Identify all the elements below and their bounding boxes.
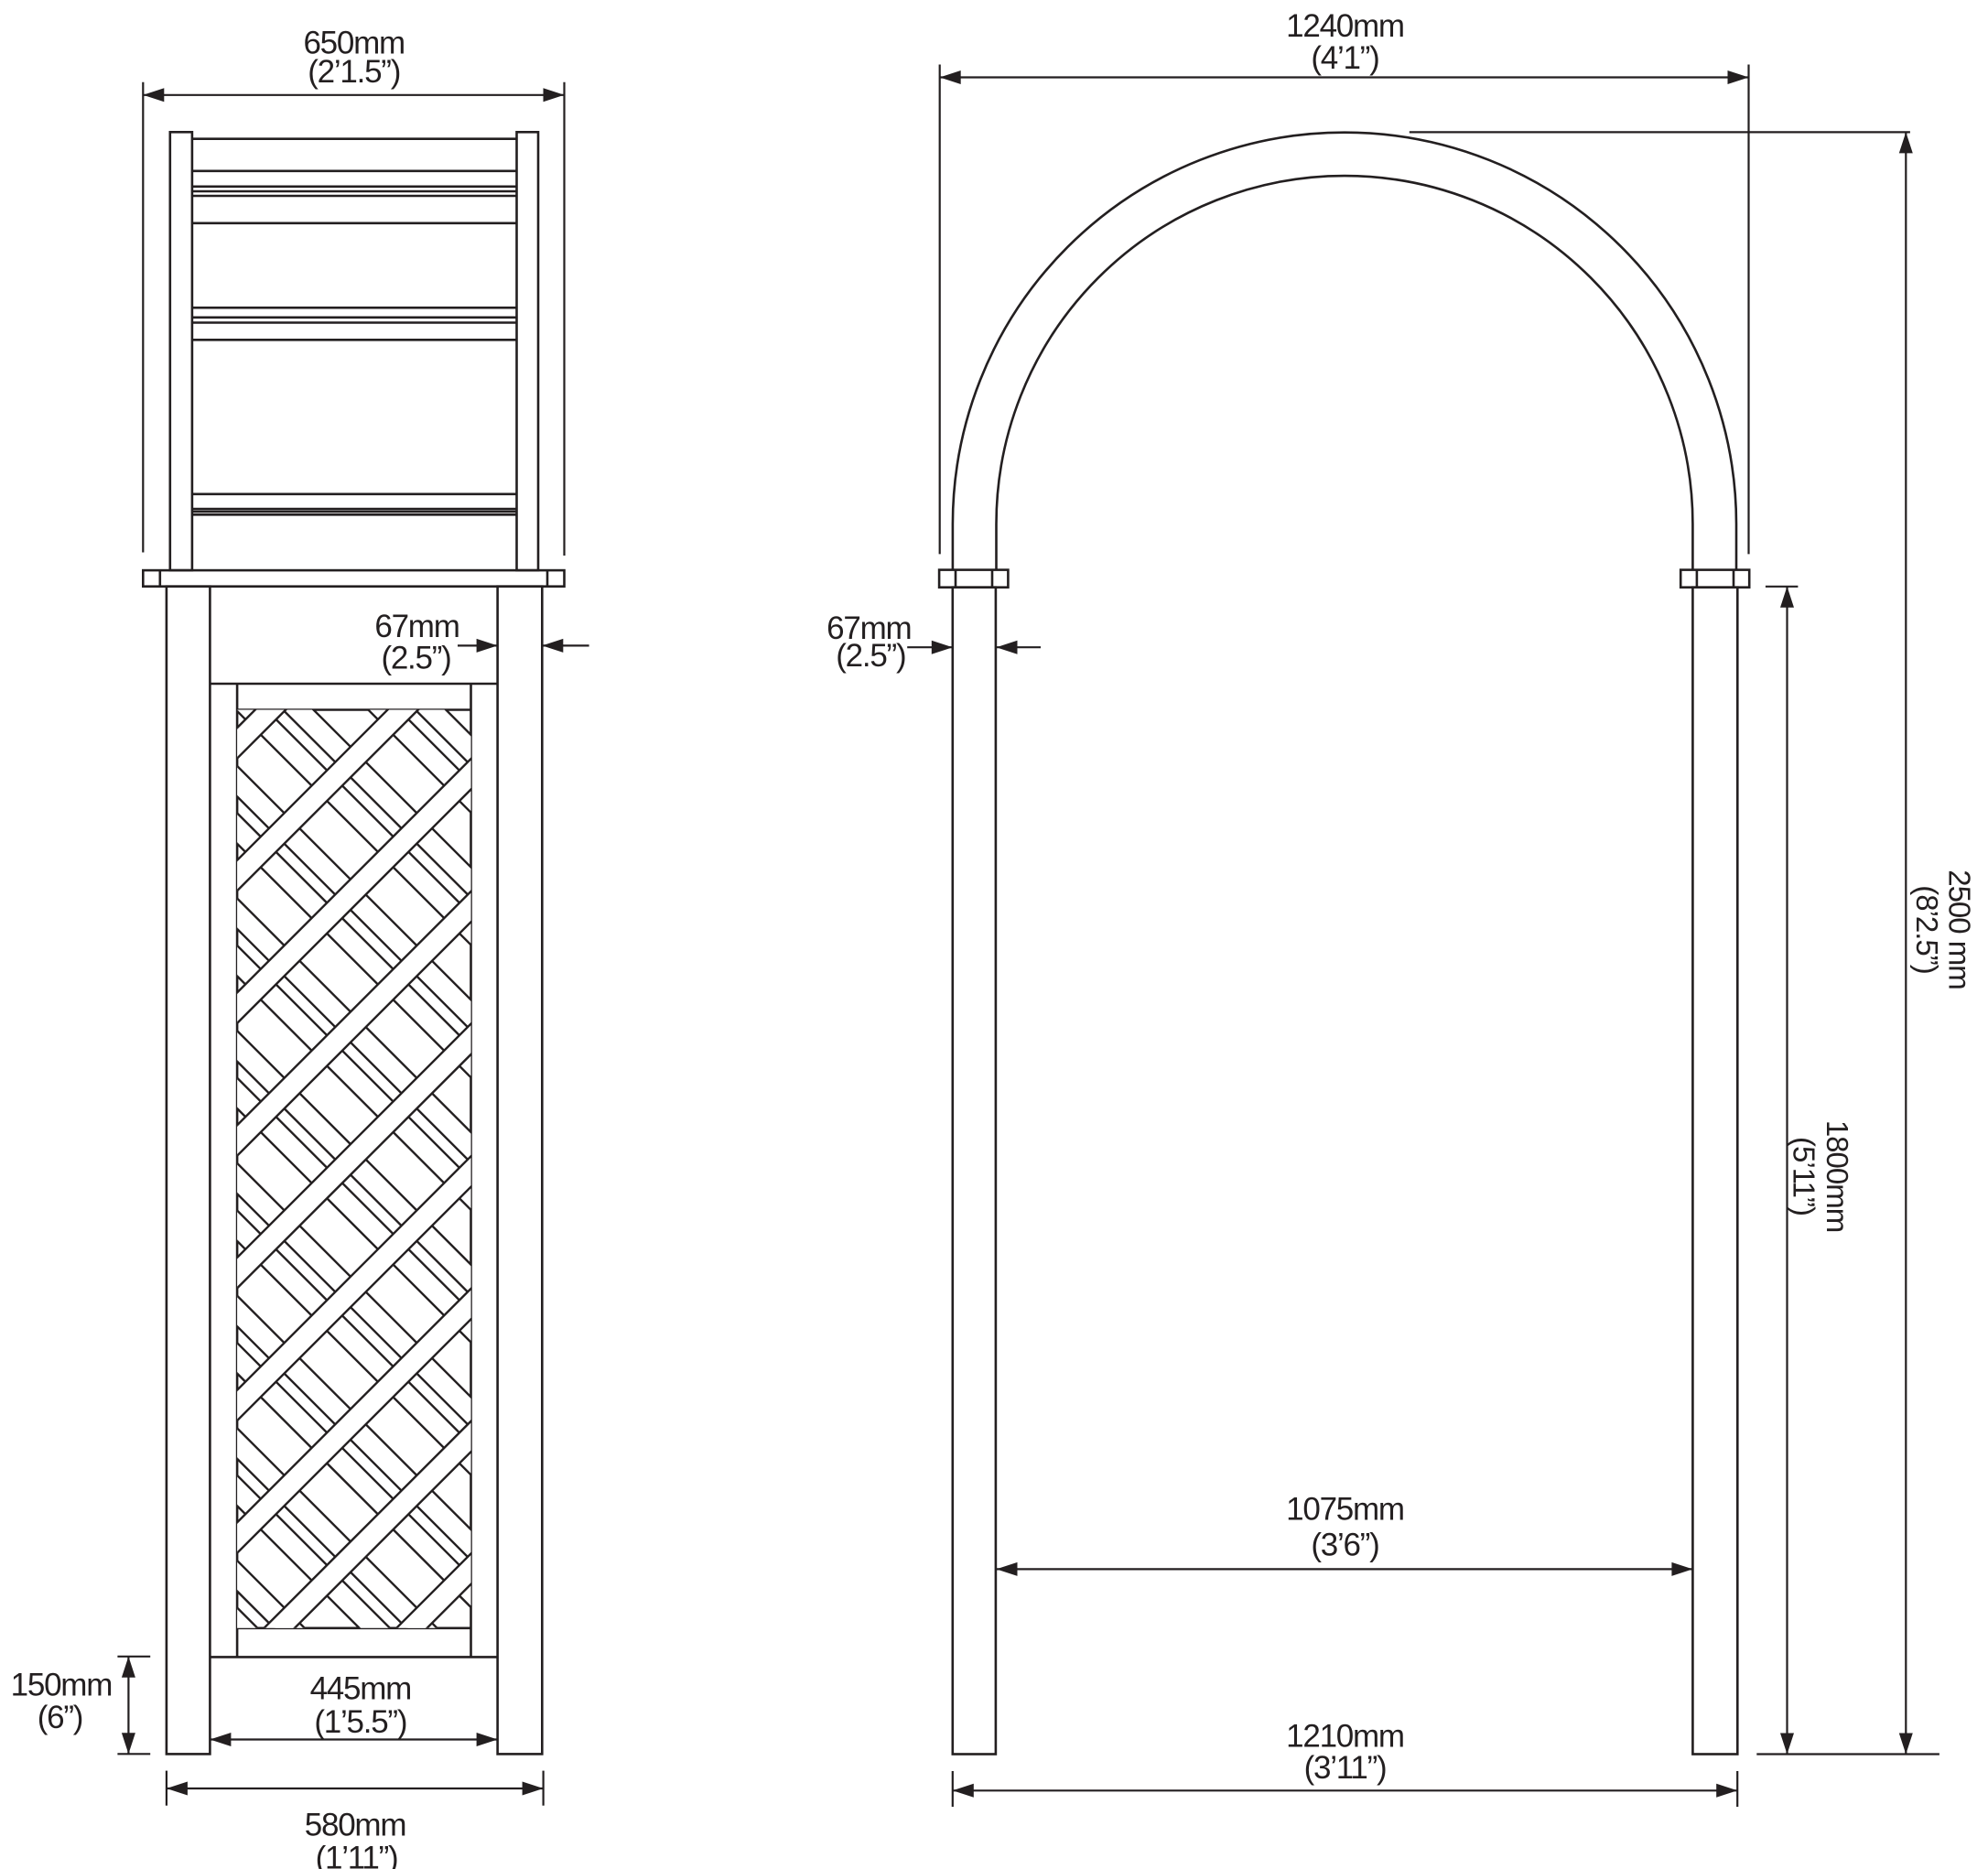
svg-text:(8’2.5”): (8’2.5”): [1910, 885, 1944, 974]
svg-text:(1’11”): (1’11”): [316, 1840, 398, 1869]
svg-text:445mm: 445mm: [310, 1671, 411, 1707]
svg-text:(2.5”): (2.5”): [836, 638, 905, 674]
svg-text:(1’5.5”): (1’5.5”): [314, 1704, 406, 1740]
svg-text:(6”): (6”): [38, 1700, 82, 1735]
svg-text:(3’11”): (3’11”): [1304, 1750, 1387, 1786]
svg-text:1240mm: 1240mm: [1286, 8, 1404, 44]
svg-text:1075mm: 1075mm: [1286, 1491, 1404, 1527]
svg-text:2500 mm: 2500 mm: [1943, 870, 1977, 989]
svg-text:(2’1.5”): (2’1.5”): [308, 54, 400, 90]
svg-text:1800mm: 1800mm: [1821, 1120, 1854, 1232]
svg-text:(2.5”): (2.5”): [381, 641, 450, 676]
svg-text:580mm: 580mm: [305, 1808, 405, 1843]
svg-text:1210mm: 1210mm: [1286, 1719, 1404, 1755]
svg-text:(3’6”): (3’6”): [1311, 1527, 1378, 1562]
svg-text:67mm: 67mm: [374, 609, 459, 644]
svg-text:150mm: 150mm: [11, 1668, 112, 1703]
svg-text:(5’11”): (5’11”): [1787, 1137, 1821, 1215]
svg-text:(4’1”): (4’1”): [1311, 40, 1378, 76]
